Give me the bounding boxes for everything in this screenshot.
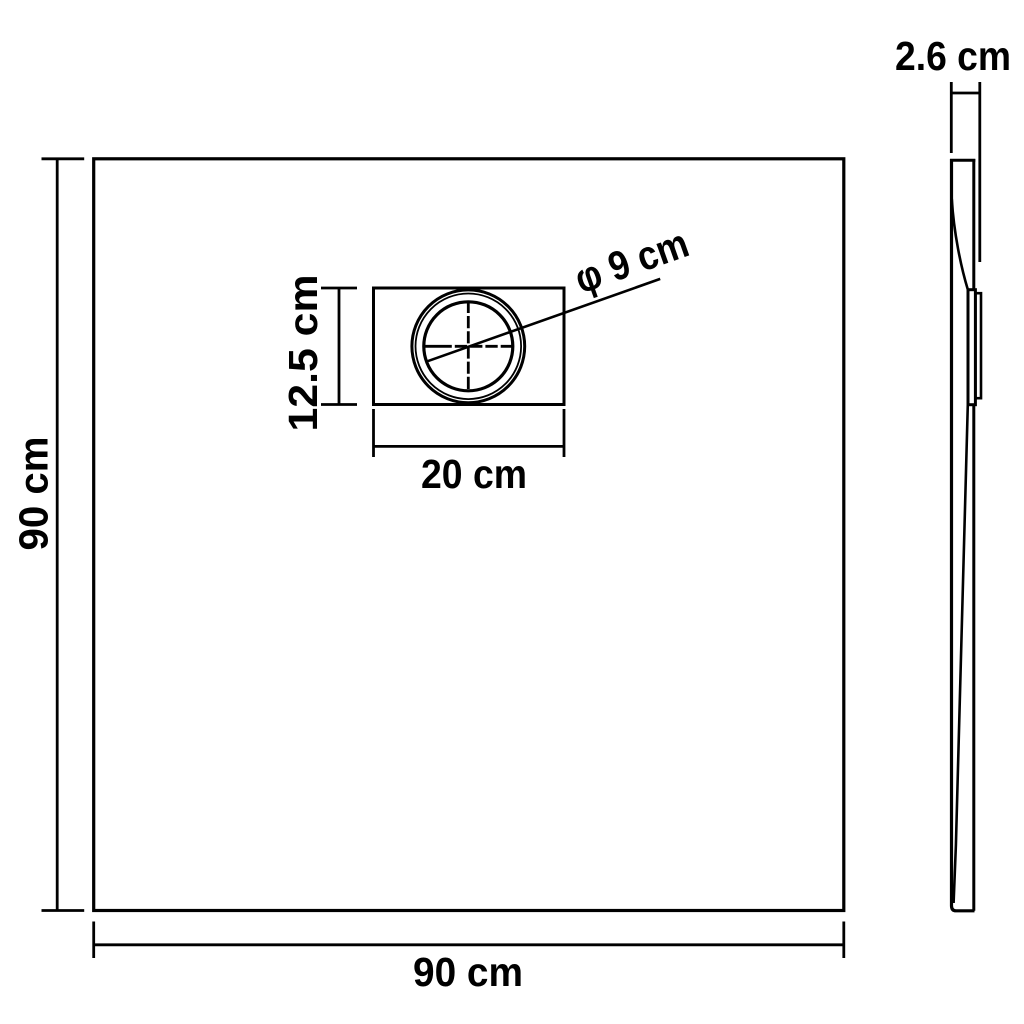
svg-text:12.5 cm: 12.5 cm — [280, 275, 326, 432]
svg-text:2.6 cm: 2.6 cm — [895, 33, 1011, 79]
svg-text:90 cm: 90 cm — [10, 437, 56, 551]
svg-text:90 cm: 90 cm — [413, 949, 523, 995]
svg-text:20 cm: 20 cm — [421, 451, 527, 497]
